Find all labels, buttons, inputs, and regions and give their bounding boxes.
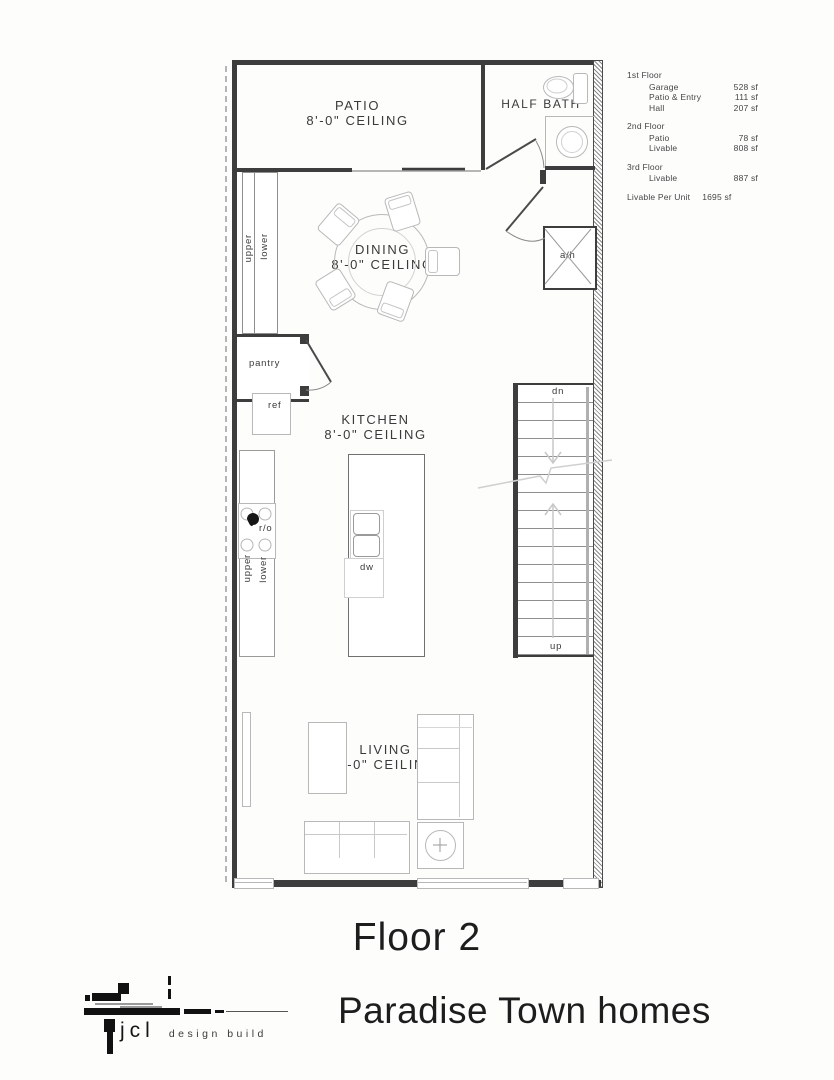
window-bottom-center — [417, 878, 529, 889]
island-sink-basin-bottom — [353, 535, 380, 557]
logo-tagline: design build — [169, 1028, 267, 1040]
window-bottom-center-mullion — [417, 882, 527, 883]
logo-dash-vertical-2 — [168, 989, 171, 999]
area-row-value: 111 sf — [735, 92, 758, 103]
area-row: Patio 78 sf — [627, 133, 758, 144]
table-lamp-icon — [425, 830, 456, 861]
area-section-title: 3rd Floor — [627, 162, 758, 173]
area-row-name: Livable — [649, 143, 677, 154]
stair-treads — [518, 385, 593, 656]
area-row: Livable 808 sf — [627, 143, 758, 154]
wall-top — [232, 60, 598, 65]
sofa-right — [417, 714, 474, 820]
pantry-label: pantry — [249, 358, 280, 369]
area-summary-table: 1st Floor Garage 528 sf Patio & Entry 11… — [627, 70, 758, 202]
dining-upper-label: upper — [243, 234, 254, 262]
stairs-down-label: dn — [548, 386, 568, 397]
stair-rail-right — [586, 387, 589, 654]
project-title: Paradise Town homes — [338, 990, 711, 1032]
refrigerator-label: ref — [266, 400, 284, 411]
stair-bottom-edge — [513, 655, 593, 657]
kitchen-lower-label: lower — [258, 556, 269, 583]
dining-chair — [425, 247, 460, 276]
area-row-name: Garage — [649, 82, 679, 93]
stairs-up-label: up — [546, 641, 566, 652]
pantry-jamb-bottom — [300, 386, 309, 396]
logo-gray-line-1 — [95, 1003, 153, 1005]
window-bottom-left — [234, 878, 274, 889]
range-label: r/o — [258, 523, 274, 534]
pantry-jamb-top — [300, 334, 309, 344]
area-total-label: Livable Per Unit — [627, 192, 690, 203]
roof-projection-dashed-line — [225, 66, 227, 882]
area-total-row: Livable Per Unit 1695 sf — [627, 192, 758, 203]
patio-name: PATIO — [280, 98, 435, 113]
window-bottom-left-mullion — [234, 882, 272, 883]
island-sink-basin-top — [353, 513, 380, 535]
logo-main-bar — [84, 1008, 180, 1015]
area-row-value: 207 sf — [734, 103, 758, 114]
sofa-right-cushion-line-1 — [418, 748, 459, 749]
area-row: Patio & Entry 111 sf — [627, 92, 758, 103]
sofa-right-arm-line — [418, 727, 472, 728]
sofa-bottom-cushion-line-2 — [374, 822, 375, 858]
logo-thin-line — [226, 1011, 288, 1012]
kitchen-name: KITCHEN — [298, 412, 453, 427]
logo-tick — [85, 995, 90, 1001]
air-handler-label: a/h — [559, 250, 577, 261]
kitchen-label: KITCHEN 8'-0" CEILING — [298, 412, 453, 442]
wall-bath-bottom-segment — [545, 166, 595, 170]
coffee-table — [308, 722, 347, 794]
area-row-name: Patio — [649, 133, 669, 144]
area-row-value: 887 sf — [734, 173, 758, 184]
window-left-living — [242, 712, 251, 807]
area-row-name: Hall — [649, 103, 664, 114]
sofa-bottom-back-line — [305, 834, 407, 835]
bath-sink-inner — [561, 131, 583, 153]
area-row-value: 808 sf — [734, 143, 758, 154]
sofa-right-cushion-line-2 — [418, 782, 459, 783]
area-section-title: 2nd Floor — [627, 121, 758, 132]
door-jamb-hall — [540, 170, 546, 184]
logo-hook-top — [104, 1019, 115, 1032]
area-section-2nd-floor: 2nd Floor Patio 78 sf Livable 808 sf — [627, 121, 758, 154]
area-total-value: 1695 sf — [702, 192, 731, 203]
bath-counter-edge — [545, 116, 595, 117]
bath-counter-side — [545, 116, 546, 166]
area-section-title: 1st Floor — [627, 70, 758, 81]
area-section-1st-floor: 1st Floor Garage 528 sf Patio & Entry 11… — [627, 70, 758, 113]
floor-title: Floor 2 — [0, 916, 834, 960]
area-row-name: Patio & Entry — [649, 92, 701, 103]
logo-bar-small — [92, 993, 121, 1001]
logo-bar-segment-2 — [184, 1009, 211, 1014]
patio-label: PATIO 8'-0" CEILING — [280, 98, 435, 128]
area-row: Garage 528 sf — [627, 82, 758, 93]
dishwasher-label: dw — [360, 562, 374, 573]
kitchen-upper-label: upper — [242, 554, 253, 582]
kitchen-ceiling: 8'-0" CEILING — [298, 427, 453, 442]
wall-left — [232, 60, 237, 888]
area-row: Hall 207 sf — [627, 103, 758, 114]
sofa-bottom-cushion-line-1 — [339, 822, 340, 858]
logo-hook-stem — [107, 1032, 113, 1054]
logo-bar-segment-3 — [215, 1010, 224, 1013]
area-row-value: 528 sf — [734, 82, 758, 93]
sofa-right-back-line — [459, 715, 460, 817]
logo-text: jcl design build — [120, 1019, 267, 1043]
window-bottom-right — [563, 878, 599, 889]
toilet-tank-icon — [573, 73, 588, 104]
area-row: Livable 887 sf — [627, 173, 758, 184]
wall-bath-left — [481, 60, 485, 170]
sofa-bottom — [304, 821, 410, 874]
floor-plan-sheet: PATIO 8'-0" CEILING HALF BATH DINING 8'-… — [0, 0, 834, 1080]
logo-dash-vertical-1 — [168, 976, 171, 985]
area-row-name: Livable — [649, 173, 677, 184]
wall-right-hatched — [593, 60, 603, 888]
area-section-3rd-floor: 3rd Floor Livable 887 sf — [627, 162, 758, 184]
dining-lower-label: lower — [259, 233, 270, 260]
logo-name: jcl — [120, 1019, 155, 1043]
toilet-bowl-icon — [543, 76, 574, 99]
area-row-value: 78 sf — [739, 133, 758, 144]
patio-ceiling: 8'-0" CEILING — [280, 113, 435, 128]
stair-top-edge — [513, 383, 593, 385]
